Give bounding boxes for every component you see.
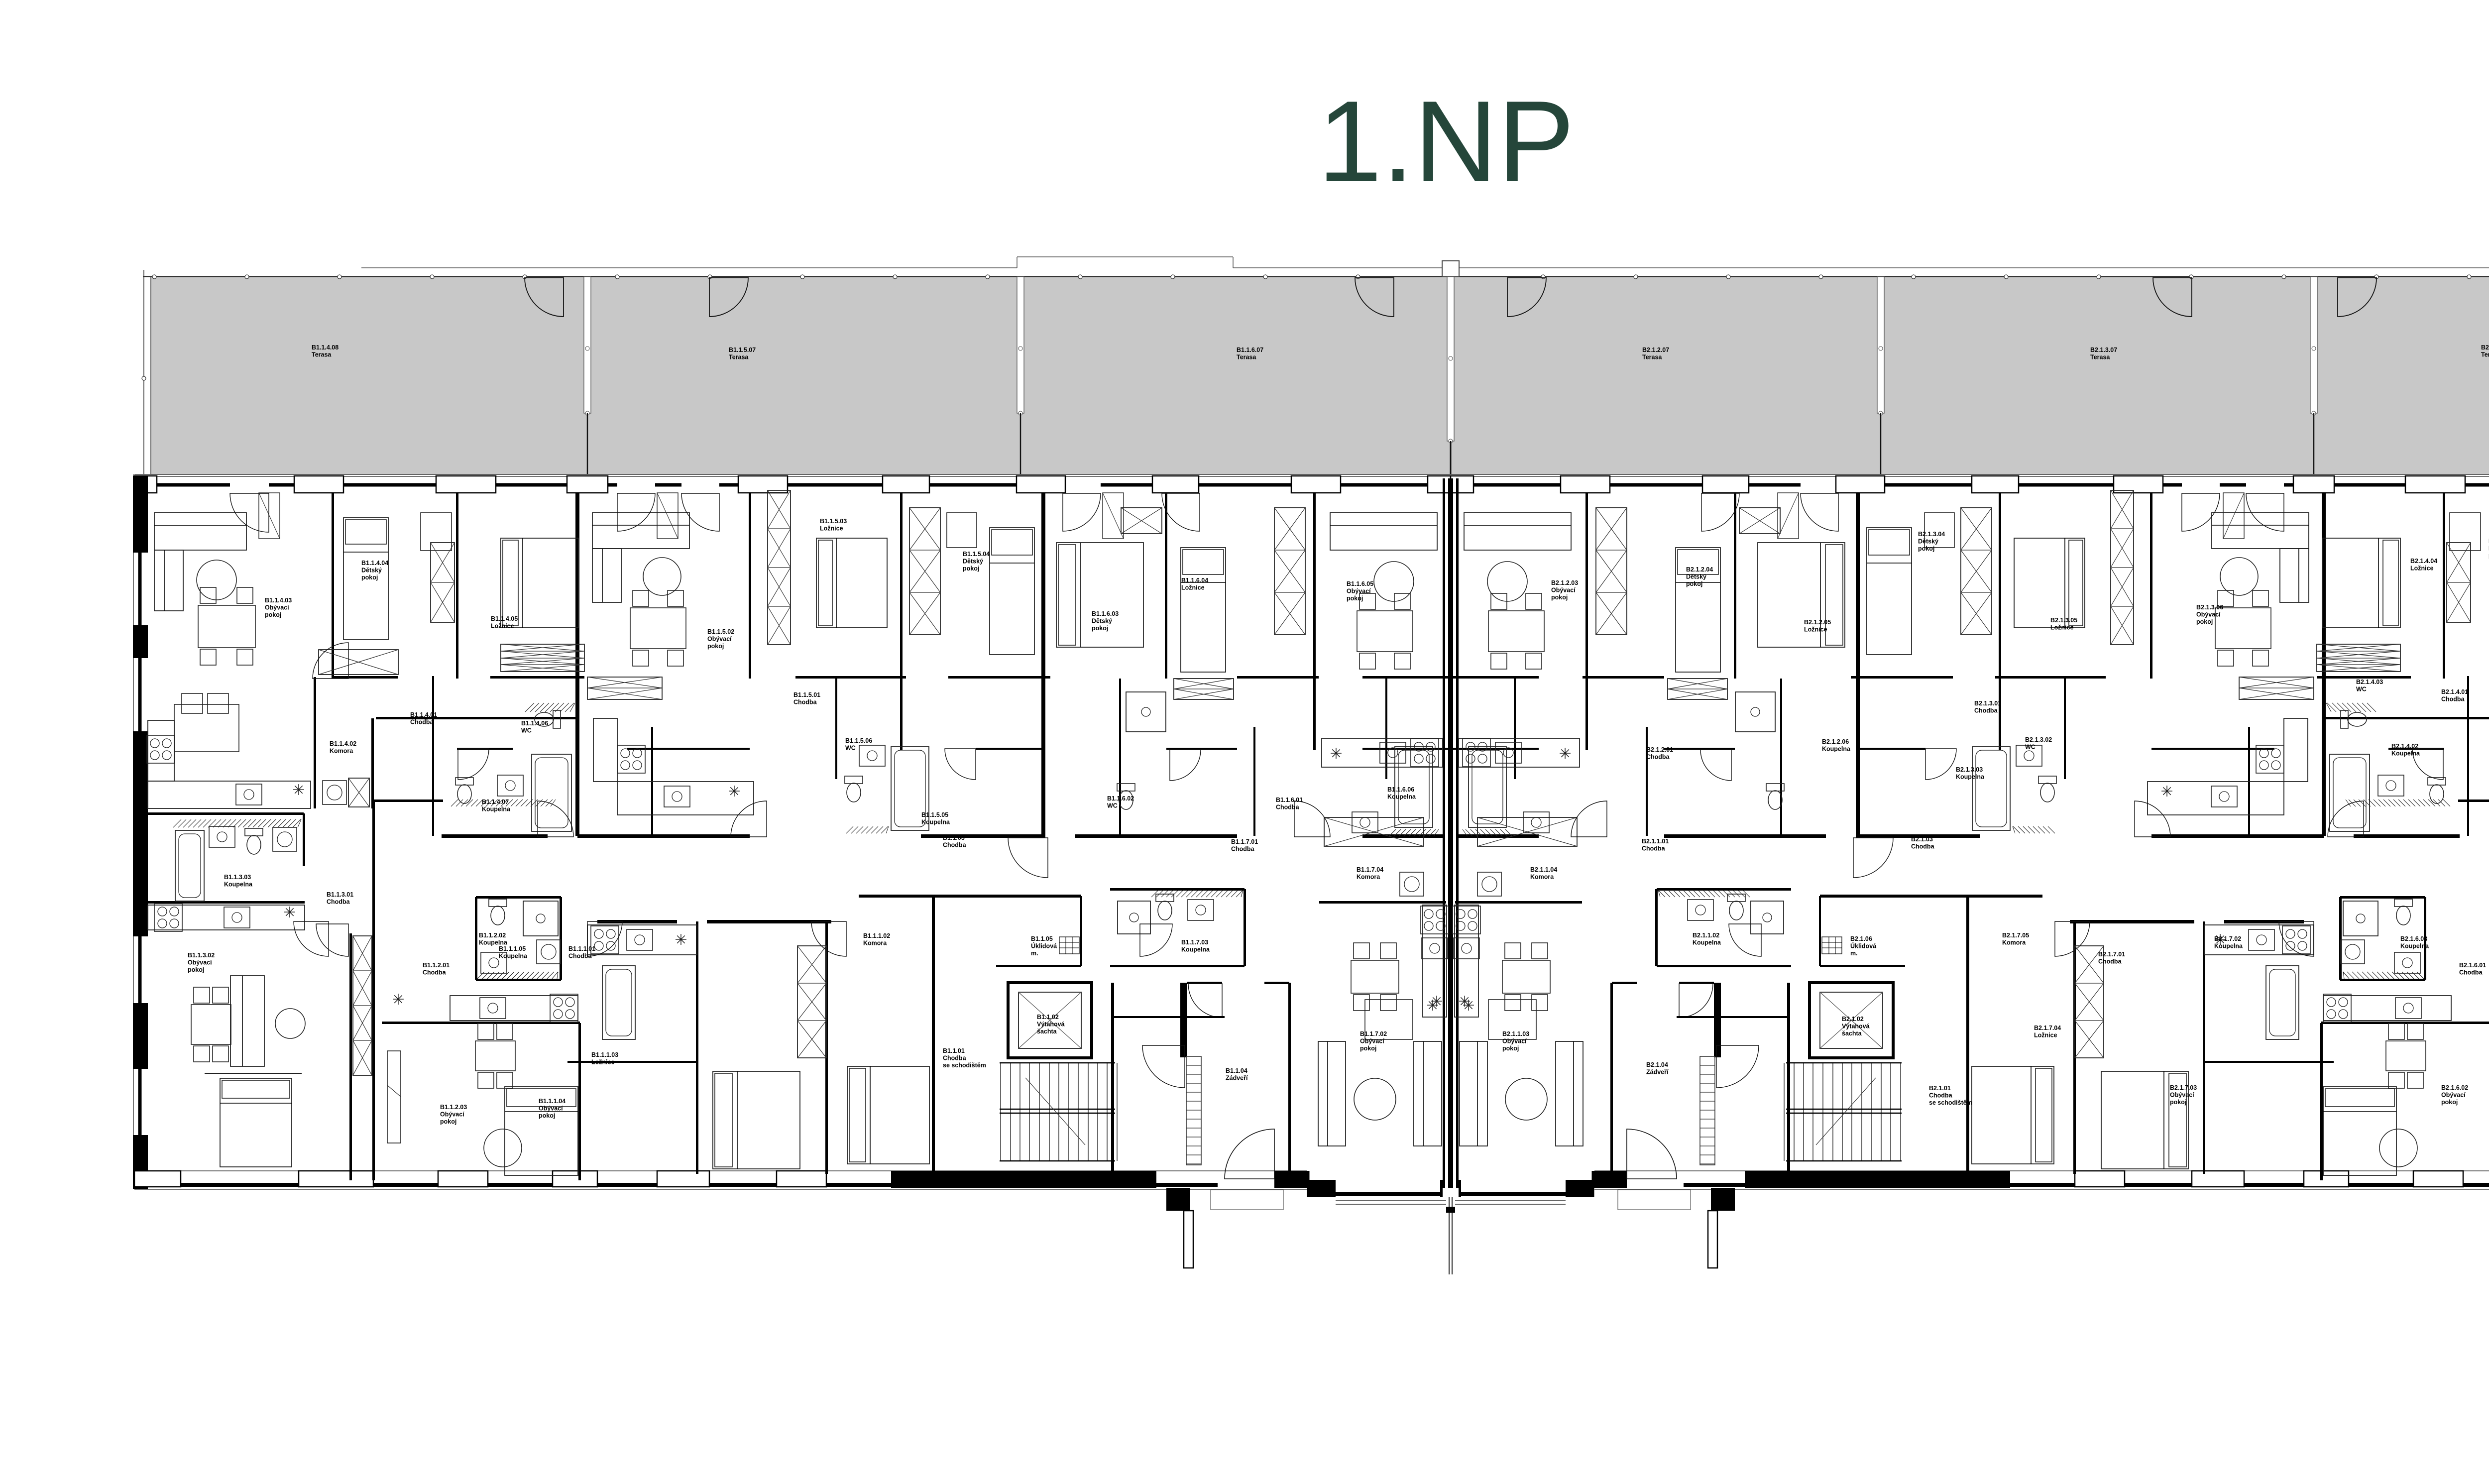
svg-text:B2.1.04Zádveří: B2.1.04Zádveří [1646, 1061, 1669, 1076]
svg-text:B1.1.4.05Ložnice: B1.1.4.05Ložnice [491, 615, 518, 630]
svg-text:B2.1.4.01Chodba: B2.1.4.01Chodba [2441, 688, 2468, 703]
svg-text:B1.1.6.01Chodba: B1.1.6.01Chodba [1276, 797, 1303, 811]
svg-text:B1.1.5.03Ložnice: B1.1.5.03Ložnice [820, 518, 847, 532]
svg-text:B1.1.1.05Koupelna: B1.1.1.05Koupelna [499, 945, 528, 960]
svg-text:1.NP: 1.NP [1318, 77, 1575, 206]
svg-text:B2.1.6.03Koupelna: B2.1.6.03Koupelna [2400, 935, 2429, 950]
svg-text:✳: ✳ [392, 992, 404, 1008]
svg-text:✳: ✳ [283, 905, 296, 921]
svg-text:B2.1.7.01Chodba: B2.1.7.01Chodba [2098, 951, 2125, 965]
svg-text:B1.1.7.03Koupelna: B1.1.7.03Koupelna [1181, 939, 1210, 953]
svg-text:B1.1.1.01Chodba: B1.1.1.01Chodba [568, 945, 595, 960]
svg-text:B1.1.2.01Chodba: B1.1.2.01Chodba [423, 962, 450, 976]
svg-text:B2.1.4.04Ložnice: B2.1.4.04Ložnice [2410, 558, 2437, 572]
svg-text:B1.1.4.02Komora: B1.1.4.02Komora [330, 740, 356, 755]
svg-text:B2.1.2.01Chodba: B2.1.2.01Chodba [1646, 746, 1673, 761]
svg-text:B2.1.3.05Ložnice: B2.1.3.05Ložnice [2050, 617, 2077, 631]
svg-text:B2.1.7.04Ložnice: B2.1.7.04Ložnice [2034, 1025, 2061, 1039]
svg-text:B2.1.3.03Koupelna: B2.1.3.03Koupelna [1956, 766, 1985, 781]
svg-text:B2.1.2.06Koupelna: B2.1.2.06Koupelna [1822, 738, 1851, 753]
svg-text:B2.1.1.02Koupelna: B2.1.1.02Koupelna [1693, 932, 1721, 946]
svg-text:B1.1.1.03Ložnice: B1.1.1.03Ložnice [591, 1051, 618, 1066]
svg-text:✳: ✳ [1330, 746, 1342, 762]
svg-text:B2.1.7.05Komora: B2.1.7.05Komora [2002, 932, 2029, 946]
svg-text:B1.1.1.02Komora: B1.1.1.02Komora [863, 932, 890, 947]
svg-text:B1.1.4.07Koupelna: B1.1.4.07Koupelna [482, 799, 511, 813]
svg-text:B1.1.6.04Ložnice: B1.1.6.04Ložnice [1181, 577, 1208, 591]
svg-text:B1.1.5.01Chodba: B1.1.5.01Chodba [793, 691, 820, 706]
svg-text:B2.1.4.02Koupelna: B2.1.4.02Koupelna [2391, 743, 2420, 757]
svg-text:B1.1.2.02Koupelna: B1.1.2.02Koupelna [479, 932, 508, 946]
svg-text:B2.1.6.01Chodba: B2.1.6.01Chodba [2459, 962, 2486, 976]
svg-text:✳: ✳ [1426, 998, 1439, 1014]
svg-text:B2.1.3.01Chodba: B2.1.3.01Chodba [1974, 700, 2001, 714]
svg-text:B1.1.03Chodba: B1.1.03Chodba [943, 834, 967, 849]
svg-text:✳: ✳ [675, 932, 687, 948]
svg-text:B1.1.04Zádveří: B1.1.04Zádveří [1226, 1067, 1248, 1082]
svg-text:B1.1.7.04Komora: B1.1.7.04Komora [1357, 866, 1383, 881]
svg-text:B2.1.1.01Chodba: B2.1.1.01Chodba [1642, 838, 1669, 852]
svg-text:B2.1.1.04Komora: B2.1.1.04Komora [1530, 866, 1557, 881]
svg-text:B2.1.7.02Koupelna: B2.1.7.02Koupelna [2214, 935, 2243, 950]
svg-text:✳: ✳ [728, 784, 740, 800]
svg-text:B2.1.2.05Ložnice: B2.1.2.05Ložnice [1804, 619, 1831, 633]
svg-text:B1.1.6.06Koupelna: B1.1.6.06Koupelna [1387, 786, 1416, 800]
svg-text:B2.1.4.08Terasa: B2.1.4.08Terasa [2481, 344, 2489, 358]
svg-text:B1.1.3.01Chodba: B1.1.3.01Chodba [327, 891, 353, 906]
svg-text:✳: ✳ [292, 782, 305, 799]
svg-text:B2.1.03Chodba: B2.1.03Chodba [1911, 836, 1935, 850]
svg-text:B1.1.4.01Chodba: B1.1.4.01Chodba [410, 711, 437, 726]
svg-text:B1.1.7.01Chodba: B1.1.7.01Chodba [1231, 838, 1258, 853]
svg-text:B1.1.3.03Koupelna: B1.1.3.03Koupelna [224, 874, 253, 888]
svg-text:B1.1.5.05Koupelna: B1.1.5.05Koupelna [921, 811, 950, 826]
